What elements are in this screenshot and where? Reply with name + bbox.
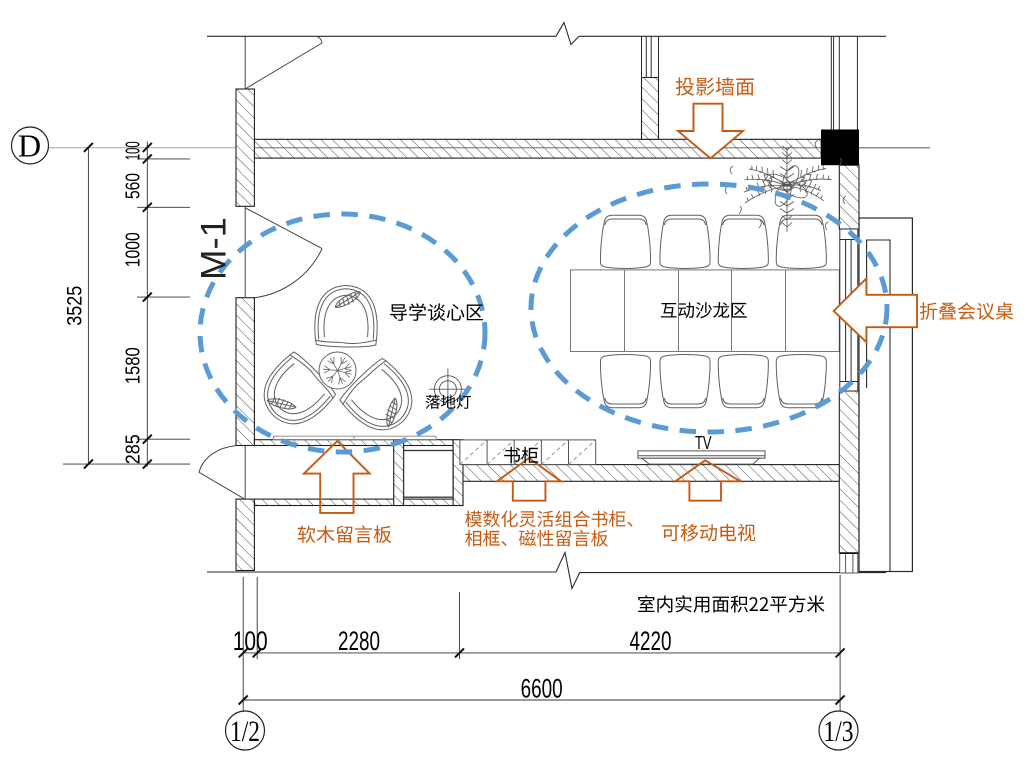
- svg-text:6600: 6600: [521, 674, 563, 704]
- svg-text:1/2: 1/2: [230, 715, 260, 748]
- svg-text:560: 560: [123, 173, 145, 199]
- svg-text:1000: 1000: [123, 232, 145, 267]
- svg-text:1580: 1580: [123, 347, 145, 384]
- svg-text:1/3: 1/3: [824, 715, 854, 748]
- svg-text:285: 285: [123, 434, 145, 464]
- svg-text:D: D: [18, 128, 41, 164]
- svg-text:3525: 3525: [64, 286, 87, 326]
- svg-text:M-1: M-1: [195, 217, 234, 280]
- svg-text:100: 100: [123, 141, 145, 160]
- svg-text:4220: 4220: [630, 626, 672, 656]
- svg-text:TV: TV: [695, 433, 712, 453]
- svg-text:2280: 2280: [338, 626, 380, 656]
- svg-text:100: 100: [233, 626, 268, 656]
